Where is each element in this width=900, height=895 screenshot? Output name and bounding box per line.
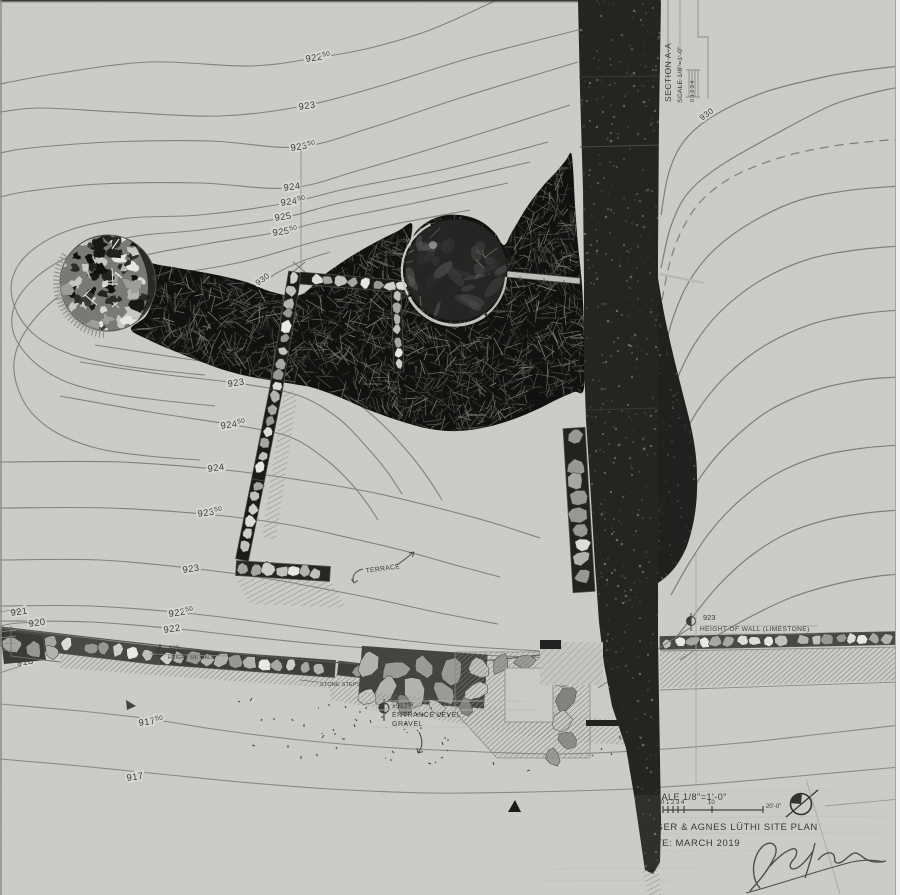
- svg-text:10: 10: [708, 800, 715, 806]
- svg-text:0 1 2 3 4: 0 1 2 3 4: [661, 800, 685, 806]
- svg-text:0 1 2 3 4: 0 1 2 3 4: [690, 81, 696, 102]
- svg-text:925: 925: [274, 211, 292, 224]
- svg-text:924: 924: [283, 181, 301, 194]
- svg-text:HEIGHT OF WALL: HEIGHT OF WALL: [168, 655, 214, 661]
- svg-text:920: 920: [28, 617, 46, 630]
- svg-text:923: 923: [227, 377, 245, 390]
- svg-text:SECTION A-A: SECTION A-A: [663, 43, 673, 102]
- svg-text:HEIGHT OF WALL (LIMESTONE): HEIGHT OF WALL (LIMESTONE): [700, 626, 810, 633]
- svg-text:20'-0": 20'-0": [766, 804, 781, 810]
- svg-text:923: 923: [169, 646, 180, 652]
- svg-text:921: 921: [10, 606, 28, 619]
- svg-text:917: 917: [126, 771, 144, 784]
- svg-text:923: 923: [703, 613, 716, 622]
- svg-text:ENTRANCE LEVEL: ENTRANCE LEVEL: [392, 712, 461, 719]
- svg-text:923: 923: [298, 100, 316, 113]
- svg-text:924: 924: [207, 462, 225, 475]
- svg-text:SCALE 1/8"=1'-0": SCALE 1/8"=1'-0": [677, 46, 684, 103]
- svg-text:STONE STEPS: STONE STEPS: [320, 682, 361, 688]
- svg-text:ROGER & AGNES LÜTHI SITE PLAN: ROGER & AGNES LÜTHI SITE PLAN: [640, 822, 818, 833]
- svg-text:922: 922: [163, 623, 181, 636]
- svg-text:923: 923: [182, 563, 200, 576]
